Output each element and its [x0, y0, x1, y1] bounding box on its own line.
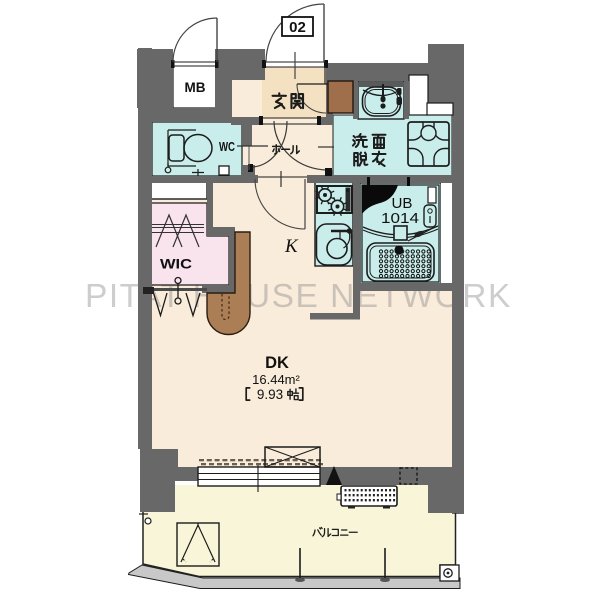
svg-text:K: K — [284, 236, 299, 257]
svg-text:1014: 1014 — [381, 211, 419, 227]
svg-text:MB: MB — [185, 79, 206, 95]
svg-text:16.44m²: 16.44m² — [252, 372, 300, 387]
svg-text:02: 02 — [289, 19, 306, 36]
svg-text:DK: DK — [265, 354, 289, 372]
svg-text:WC: WC — [219, 139, 235, 154]
svg-text:UB: UB — [392, 196, 413, 212]
svg-text:9.93: 9.93 — [257, 387, 283, 402]
svg-text:WIC: WIC — [160, 256, 192, 272]
